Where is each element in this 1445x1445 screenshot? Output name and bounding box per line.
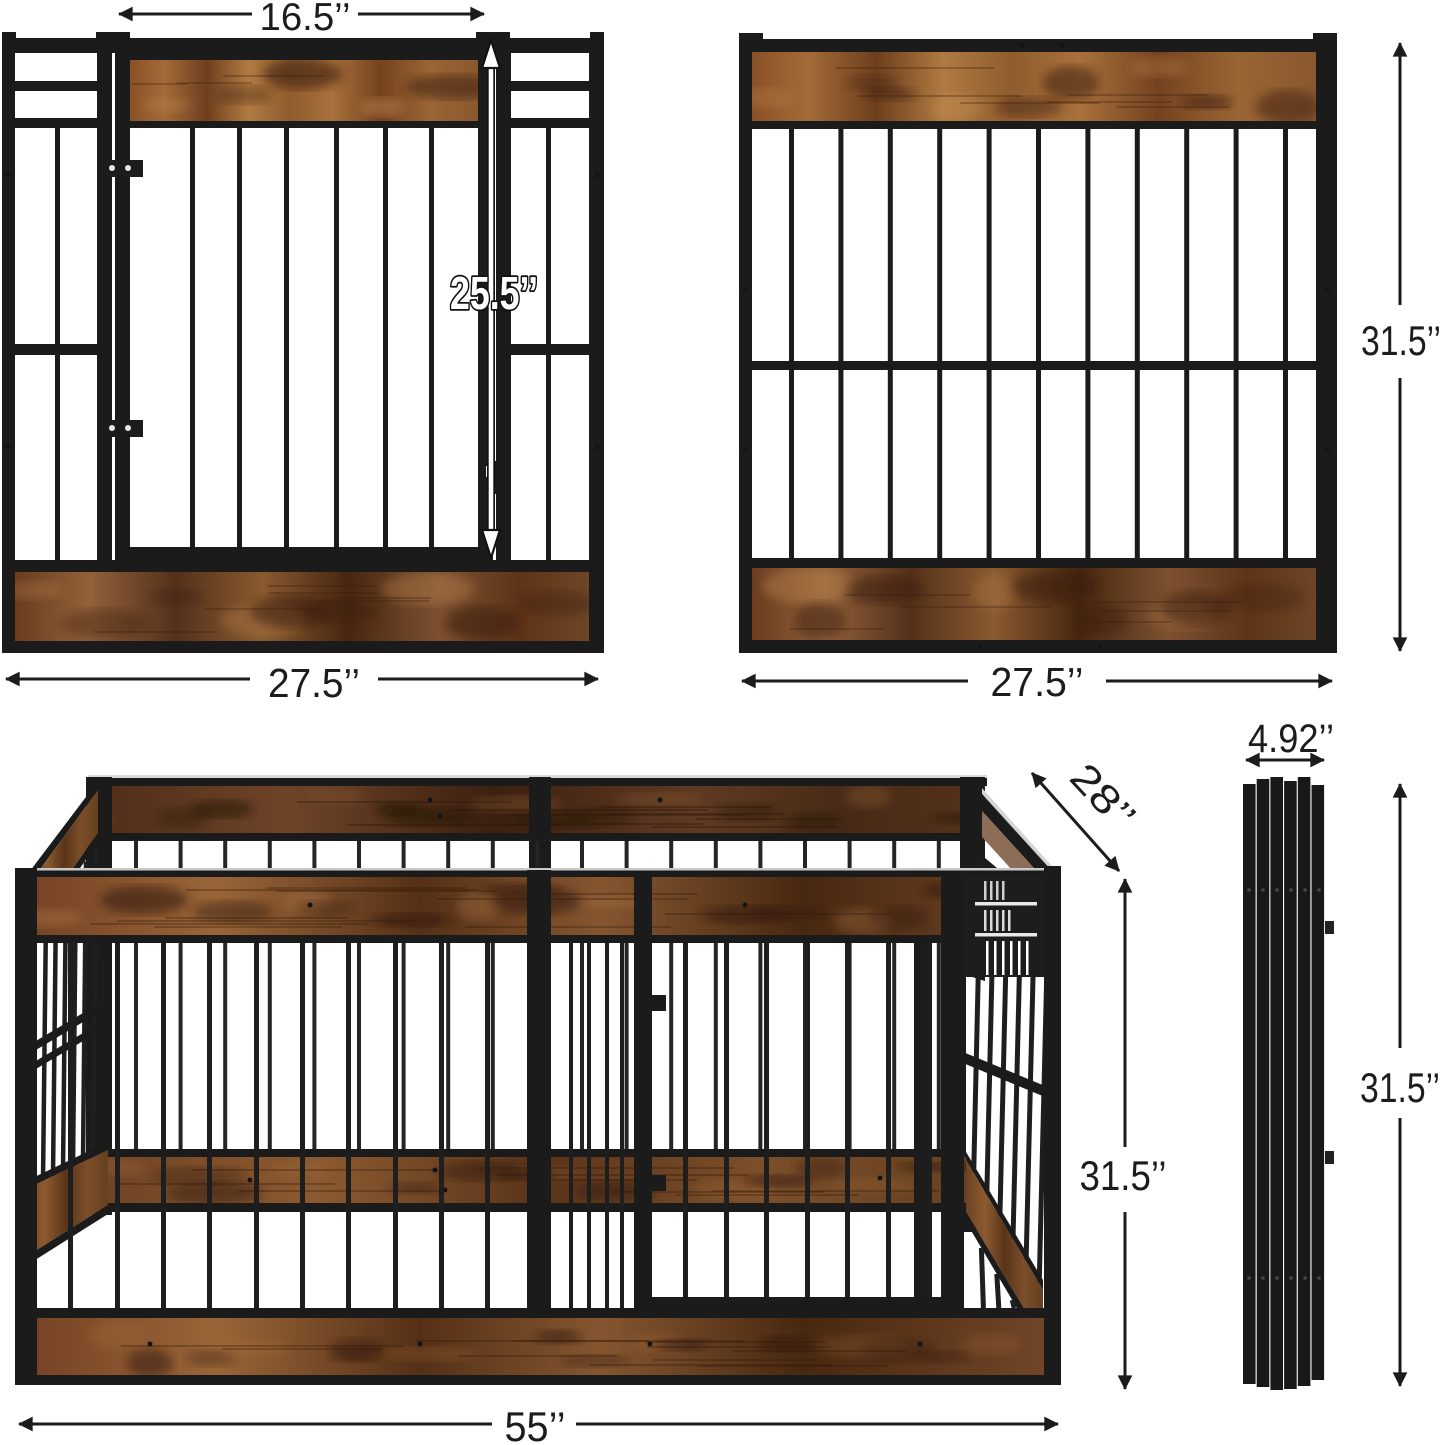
svg-text:27.5’’: 27.5’’ [268,660,360,706]
svg-text:55’’: 55’’ [505,1403,566,1445]
svg-text:31.5’’: 31.5’’ [1080,1152,1167,1199]
svg-text:31.5’’: 31.5’’ [1361,317,1441,364]
svg-text:31.5’’: 31.5’’ [1360,1064,1440,1111]
svg-text:25.5’’: 25.5’’ [450,267,538,319]
svg-text:27.5’’: 27.5’’ [991,659,1084,705]
svg-text:4.92’’: 4.92’’ [1248,717,1334,761]
svg-text:16.5’’: 16.5’’ [260,0,351,39]
